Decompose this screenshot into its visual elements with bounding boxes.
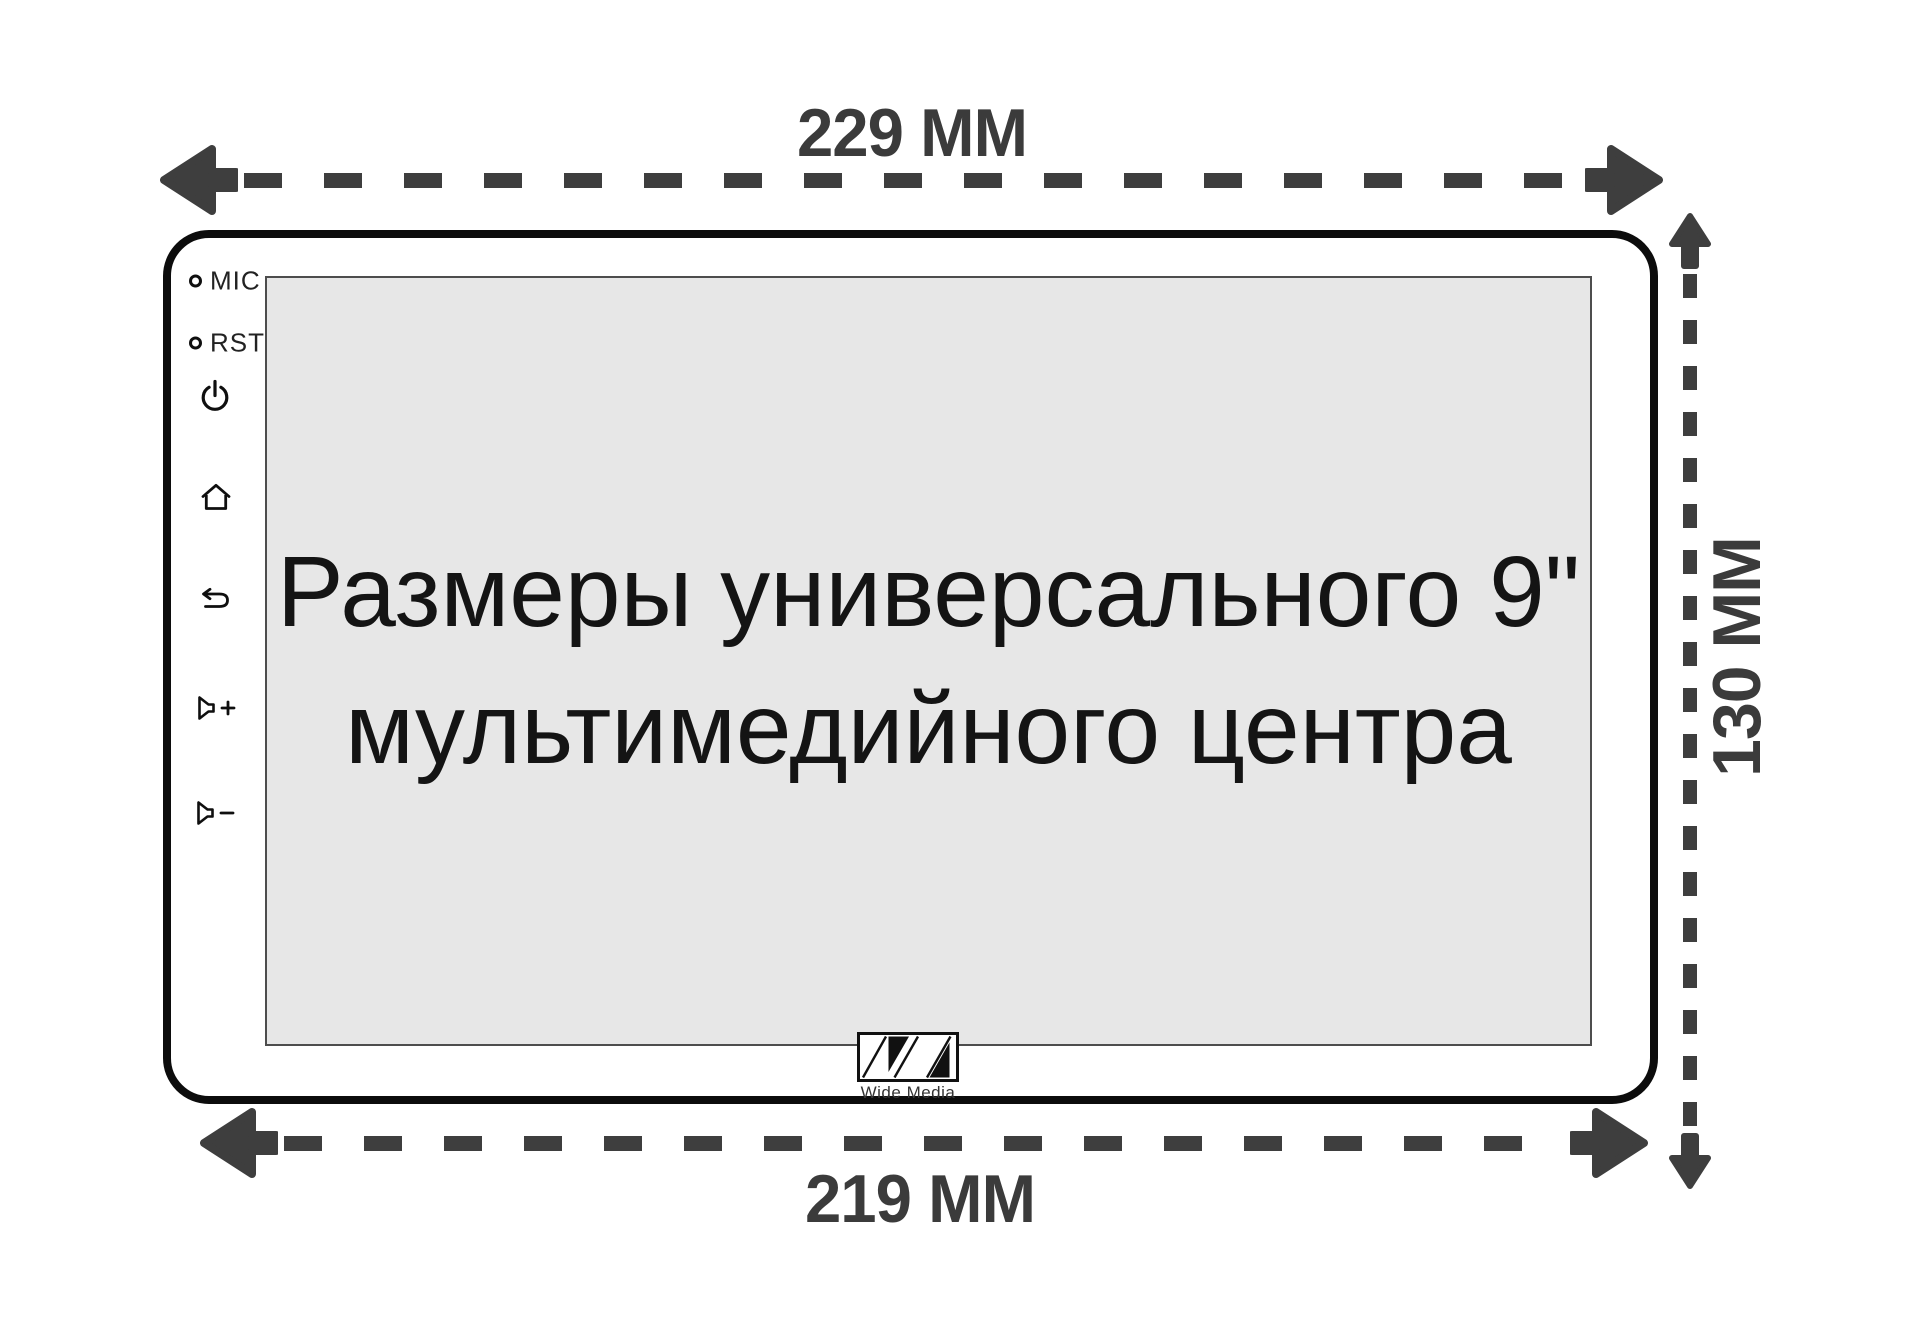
wide-media-logo-mark bbox=[857, 1032, 959, 1082]
mic-hole: MIC bbox=[189, 266, 261, 297]
volume-up-icon bbox=[196, 695, 238, 722]
arrowhead-down-icon bbox=[1668, 1132, 1712, 1190]
dimension-label-top-width: 229 ММ bbox=[768, 94, 1056, 172]
dimension-label-height: 130 ММ bbox=[1702, 507, 1772, 807]
dashed-line bbox=[284, 1136, 1564, 1151]
mic-label: MIC bbox=[210, 266, 261, 297]
arrowhead-right-icon bbox=[1570, 1105, 1650, 1181]
diagram-canvas: 229 ММ Размеры универсального 9" мультим… bbox=[0, 0, 1920, 1318]
screen: Размеры универсального 9" мультимедийног… bbox=[265, 276, 1592, 1046]
screen-title-line2: мультимедийного центра bbox=[345, 661, 1512, 798]
volume-down-icon bbox=[195, 800, 237, 827]
dashed-line bbox=[1683, 274, 1697, 1128]
back-icon bbox=[197, 588, 232, 613]
dashed-line bbox=[244, 173, 1579, 188]
dimension-label-bottom-width: 219 ММ bbox=[776, 1160, 1064, 1238]
power-icon bbox=[200, 380, 230, 413]
arrowhead-left-icon bbox=[158, 142, 238, 218]
reset-label: RST bbox=[210, 328, 265, 359]
reset-hole: RST bbox=[189, 328, 265, 359]
screen-title-line1: Размеры универсального 9" bbox=[277, 524, 1580, 661]
arrowhead-up-icon bbox=[1668, 212, 1712, 270]
arrowhead-left-icon bbox=[198, 1105, 278, 1181]
arrowhead-right-icon bbox=[1585, 142, 1665, 218]
home-icon bbox=[201, 483, 232, 512]
mic-hole-icon bbox=[189, 275, 202, 288]
reset-hole-icon bbox=[189, 337, 202, 350]
wide-media-brand-text: Wide Media bbox=[861, 1083, 956, 1103]
wide-media-logo: Wide Media bbox=[850, 1032, 966, 1103]
